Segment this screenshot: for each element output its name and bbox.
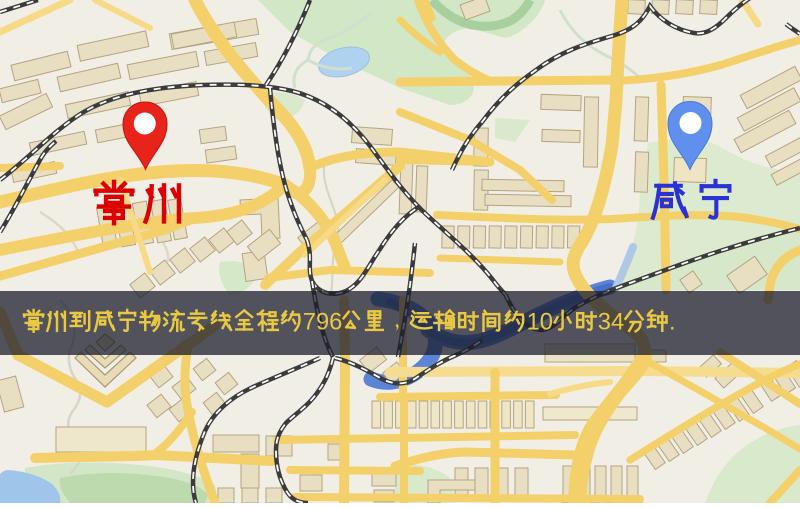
svg-text:10: 10 bbox=[527, 310, 553, 336]
svg-text:34: 34 bbox=[598, 310, 624, 336]
svg-text:796: 796 bbox=[303, 310, 343, 336]
svg-text:.: . bbox=[669, 310, 676, 336]
